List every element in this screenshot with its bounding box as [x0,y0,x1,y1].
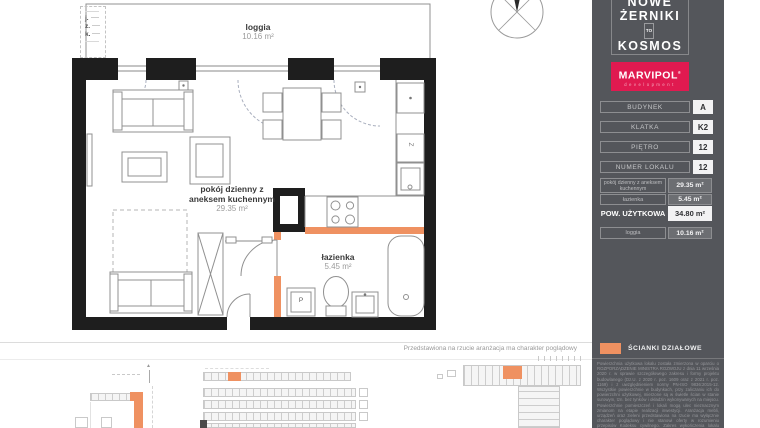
legend-faint-mark [85,11,99,12]
floor-strip [203,412,356,421]
developer-subtitle: development [611,82,689,88]
washer-letter: P [288,297,314,304]
floor-strip [203,388,356,397]
highlight-apartment [503,366,522,379]
legal-fine-print: Powierzchnia użytkowa lokalu została zmi… [597,361,719,428]
estate-logo: NOWE ŻERNIKI TOKOSMOS [611,0,689,55]
loggia-row-value: 10.16 m² [668,227,712,239]
area-living-value: 29.35 m² [668,178,712,193]
row-numer-lokalu-value: 12 [693,160,713,174]
mini-north-arrow-icon: ▲ [146,363,151,369]
total-area-label: POW. UŻYTKOWA [600,206,666,221]
floor-strip [203,372,351,381]
legend-item-z: z. [85,23,105,31]
divider-line [0,342,592,343]
floor-strip-stub [359,400,368,409]
section-dash [205,368,269,369]
interior-doors [225,237,277,317]
highlight-wall [134,400,143,428]
divider-line [0,359,592,360]
floor-plan-area: j. z. k. loggia 10.16 m² pokój dzienny z… [0,0,592,428]
floor-strip-stub [359,412,368,421]
logo-line-1: NOWE [612,0,688,9]
floor-strip-stub [359,388,368,397]
row-pietro-label: PIĘTRO [600,141,690,153]
floor-strip [203,423,356,428]
sidebar-divider [592,358,724,359]
floor-strip [203,400,356,409]
bathroom-label: łazienka 5.45 m² [283,252,393,272]
grid-ticks [538,356,586,361]
legend-faint-mark [85,41,99,42]
mini-room-outline [75,417,88,428]
area-bathroom-value: 5.45 m² [668,194,712,205]
miniplan-wall-bar [90,393,132,401]
row-numer-lokalu-label: NUMER LOKALU [600,161,690,173]
row-pietro-value: 12 [693,140,713,154]
logo-to-badge: TO [644,23,654,39]
loggia-label: loggia 10.16 m² [200,22,316,42]
logo-line-2: ŻERNIKI [612,9,688,23]
dining-table [283,88,321,140]
info-sidebar: NOWE ŻERNIKI TOKOSMOS MARVIPOL® developm… [592,0,724,428]
plan-disclaimer: Przedstawiona na rzucie aranżacja ma cha… [0,345,577,352]
bathtub [388,236,424,316]
logo-line-3: TOKOSMOS [612,23,688,53]
mini-wall-line [90,402,91,428]
optional-bed-outline [113,210,187,272]
key-building-wing-v [518,386,560,428]
radiator [87,134,92,186]
apartment-card-page: j. z. k. loggia 10.16 m² pokój dzienny z… [0,0,760,428]
mini-room-outline [101,417,112,428]
developer-name: MARVIPOL® [611,67,689,82]
north-compass-icon [491,0,543,38]
key-fragment [447,370,456,377]
highlight-unit [228,372,241,381]
row-budynek-label: BUDYNEK [600,101,690,113]
key-fragment [437,374,443,379]
key-building-wing-h [463,365,581,386]
abbreviation-legend: j. z. k. [80,6,106,58]
mini-north-arrow-line [149,370,150,383]
partition-wall-swatch [600,343,621,354]
freezer-letter: Z [407,134,414,155]
miniplan-dash [152,386,153,428]
bathroom-fixtures [287,236,424,317]
legend-item-j: j. [85,15,105,23]
registered-mark: ® [678,70,681,75]
partition-legend-label: ŚCIANKI DZIAŁOWE [628,345,702,352]
floor-plan-drawing [0,0,592,428]
section-marker [200,420,207,428]
area-bathroom-label: łazienka [600,194,666,205]
area-living-label: pokój dzienny z aneksem kuchennym [600,178,666,193]
row-klatka-value: K2 [693,120,713,134]
row-klatka-label: KLATKA [600,121,690,133]
total-area-value: 34.80 m² [668,206,712,221]
row-budynek-value: A [693,100,713,114]
toilet [324,277,349,308]
loggia-row-label: loggia [600,227,666,239]
developer-logo: MARVIPOL® development [611,62,689,91]
legend-item-k: k. [85,31,105,39]
living-room-label: pokój dzienny z aneksem kuchennym 29.35 … [163,184,301,214]
dining-set [263,88,341,140]
miniplan-dash [112,374,140,375]
